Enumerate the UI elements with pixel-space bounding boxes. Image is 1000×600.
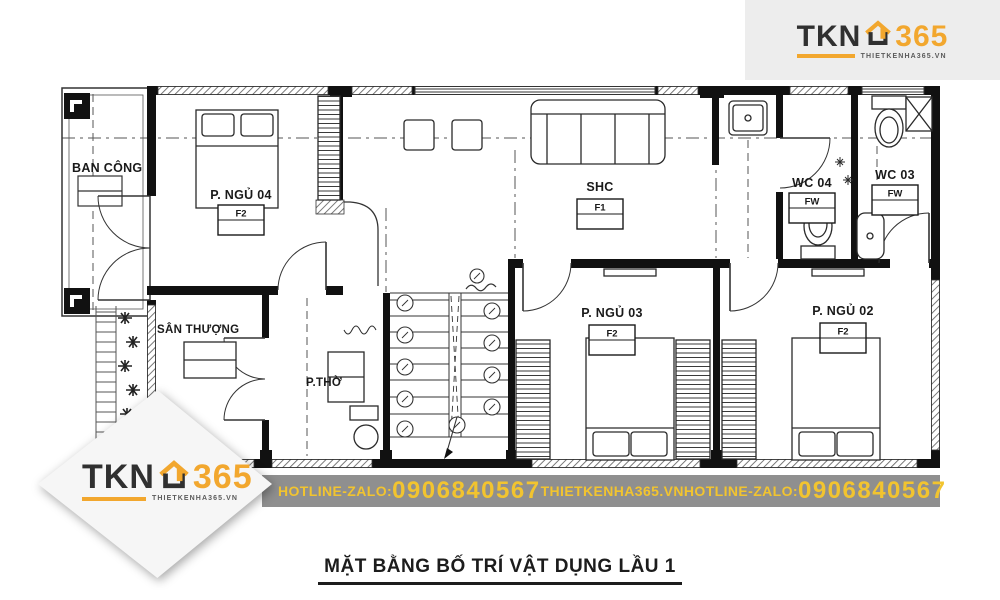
bed-bedroom-02 [792,338,880,460]
wardrobe-bedroom-03-right [676,340,710,459]
svg-text:FW: FW [888,189,903,200]
wardrobe-bedroom-03-left [516,340,550,459]
website-text: THIETKENHA365.VN [541,483,684,499]
logo-underline-bar [82,497,146,501]
hotline-label-1: HOTLINE-ZALO: [278,483,392,499]
label-bedroom-02: P. NGỦ 02 F2 [812,303,874,353]
logo-text-accent: 365 [895,23,948,50]
door-bedroom-04 [278,242,326,290]
door-wc-03 [879,213,929,263]
furniture [184,96,932,460]
curtain-icon [344,326,376,334]
corner-shelf-wc-03 [906,97,932,131]
house-icon [158,460,190,492]
svg-text:P. NGỦ 02: P. NGỦ 02 [812,303,874,318]
altar-stool [354,425,378,449]
wall-shelf-bedroom-03 [604,269,656,276]
label-bedroom-03: P. NGỦ 03 F2 [581,305,643,355]
wall-shelf-bedroom-02 [812,269,864,276]
staircase [390,269,508,459]
hotline-phone-2: 0906840567 [798,477,946,505]
window-living [415,87,655,95]
hotline-label-2: HOTLINE-ZALO: [684,483,798,499]
toilet-wc-03 [872,96,906,147]
wardrobe-bedroom-02 [722,340,756,459]
laundry-basin [729,101,767,135]
hotline-banner: HOTLINE-ZALO: 0906840567 THIETKENHA365.V… [262,475,940,507]
wall-return-curve [344,202,378,286]
svg-text:F1: F1 [594,203,606,214]
svg-text:WC 04: WC 04 [792,176,832,190]
label-wc-03: WC 03 FW [872,168,918,215]
window-wc03 [862,87,924,95]
balcony-planter [78,176,122,206]
floor-plan-page: BAN CÔNG P. NGỦ 04 F2 SHC F1 WC 04 FW [0,0,1000,600]
logo-text-dark: TKN [82,462,155,493]
sink-wc-03 [857,213,884,259]
door-bedroom-03 [523,263,571,311]
logo-bottom-left-wrap: TKN 365 THIETKENHA365.VN [82,460,253,502]
drawing-title: MẶT BẰNG BỐ TRÍ VẬT DỤNG LẦU 1 [318,556,682,585]
logo-tagline: THIETKENHA365.VN [152,495,238,502]
svg-text:P. NGỦ 03: P. NGỦ 03 [581,305,643,320]
logo-underline-bar [797,54,855,58]
bed-bedroom-03 [586,338,674,460]
door-bedroom-02 [730,263,778,311]
hotline-phone-1: 0906840567 [392,477,540,505]
shower-valve-icon [835,157,853,185]
logo-text-accent: 365 [193,462,253,493]
terrace-table [184,342,236,378]
svg-text:F2: F2 [606,329,617,340]
door-balcony [98,196,150,300]
svg-text:P. NGỦ 04: P. NGỦ 04 [210,187,272,202]
label-terrace: SÂN THƯỢNG [157,323,239,336]
house-icon [864,20,892,49]
label-bedroom-04: P. NGỦ 04 F2 [210,187,272,235]
logo-bottom-left: TKN 365 THIETKENHA365.VN [82,460,253,502]
svg-text:F2: F2 [235,209,246,220]
svg-text:F2: F2 [837,327,848,338]
sofa-living [531,100,665,164]
logo-text-dark: TKN [797,23,862,50]
label-wc-04: WC 04 FW [789,176,835,223]
brand-panel-top-right: TKN 365 THIETKENHA365.VN [745,0,1000,80]
logo-tagline: THIETKENHA365.VN [861,53,947,60]
stool-1 [404,120,434,150]
wardrobe-bedroom-04 [318,96,340,200]
svg-text:SHC: SHC [586,180,613,194]
stool-2 [452,120,482,150]
svg-text:FW: FW [805,197,820,208]
label-balcony: BAN CÔNG [72,160,142,175]
svg-text:WC 03: WC 03 [875,168,915,182]
break-line-icon [466,284,496,291]
label-living: SHC F1 [577,180,623,229]
logo-top-right: TKN 365 THIETKENHA365.VN [797,20,949,59]
balcony-structure [62,88,150,316]
label-altar-room: P.THỜ [306,376,342,389]
